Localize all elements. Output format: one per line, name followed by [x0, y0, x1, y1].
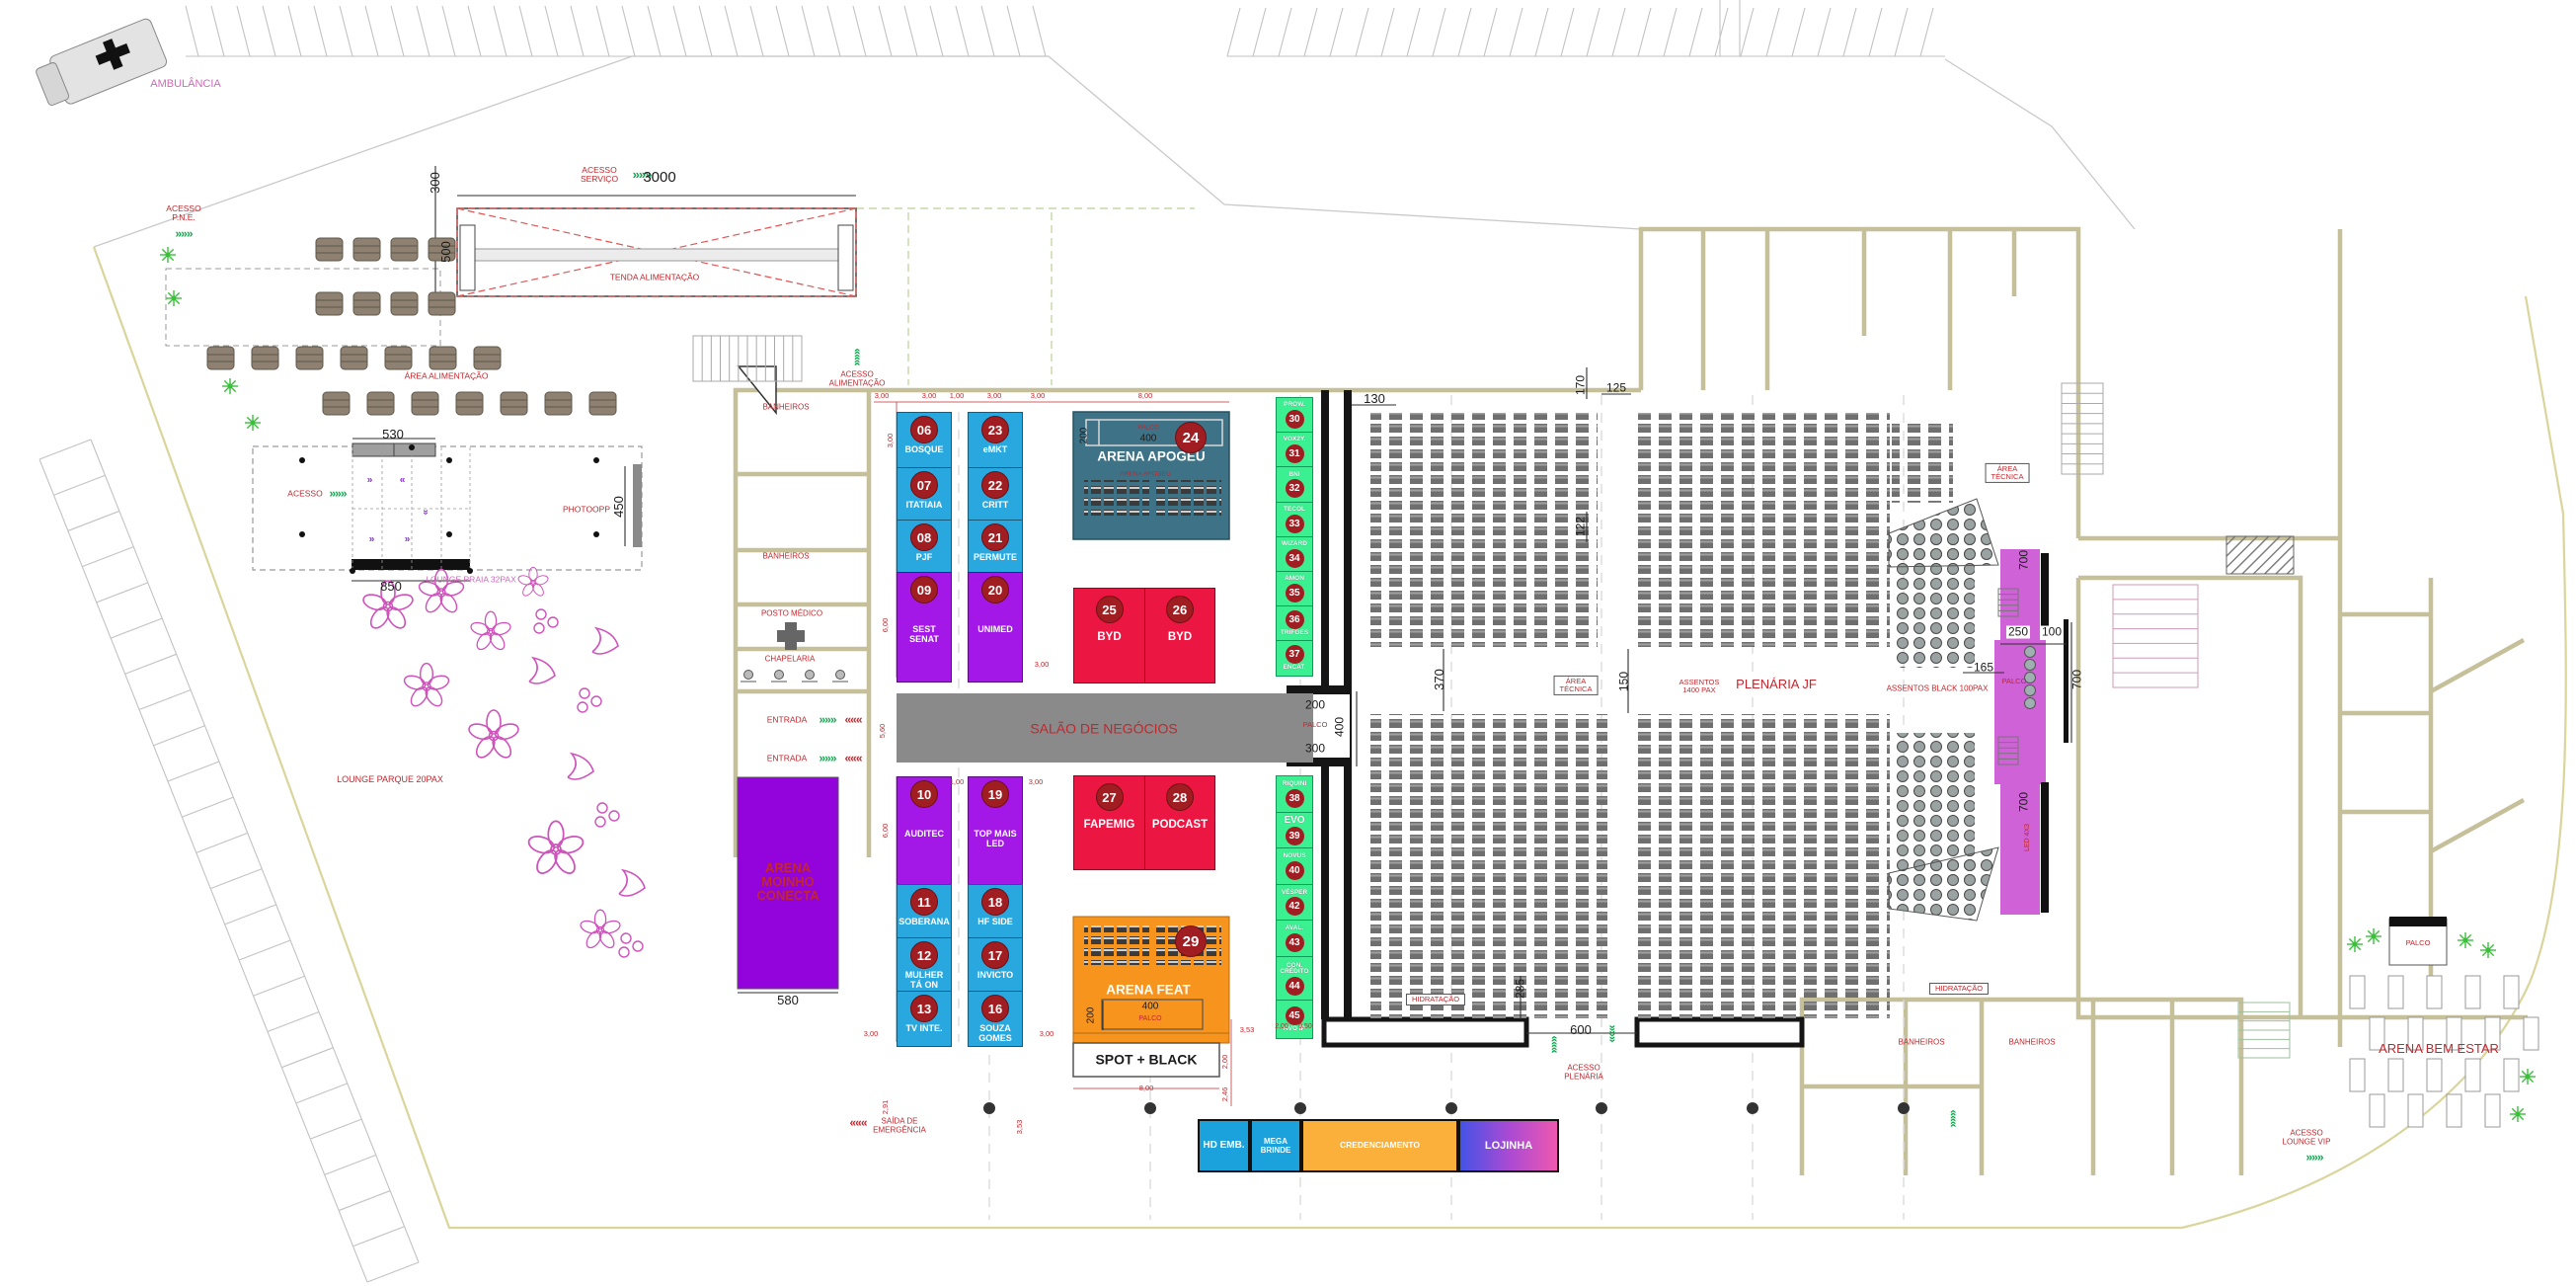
- booth-number-badge: 12: [910, 941, 938, 969]
- kiosk-hd-emb: HD EMB.: [1198, 1119, 1250, 1172]
- booth-name: BYD: [1168, 631, 1192, 644]
- stand-45-nvo-ip: 45NVO IP: [1276, 1000, 1313, 1039]
- booth-number-badge: 25: [1096, 596, 1124, 623]
- booth-number-badge: 13: [910, 995, 938, 1022]
- main-stage: [1994, 536, 2294, 915]
- stand-39-evo: EVO39: [1276, 812, 1313, 849]
- stand-number-badge: 43: [1286, 933, 1304, 952]
- booth-25-byd: 25BYD: [1073, 588, 1145, 683]
- stand-name: VOX2Y.: [1284, 437, 1306, 443]
- stand-name: AVAL.: [1286, 925, 1304, 932]
- stand-name: RIQUINI: [1283, 781, 1307, 788]
- stand-number-badge: 35: [1286, 584, 1304, 603]
- booth-name: BYD: [1097, 631, 1121, 644]
- booth-name: TOP MAIS LED: [974, 830, 1016, 849]
- stand-number-badge: 31: [1286, 444, 1304, 463]
- booth-name: HF SIDE: [977, 918, 1013, 927]
- booth-19-top-mais-led: 19TOP MAIS LED: [968, 776, 1023, 887]
- stand-number-badge: 32: [1286, 479, 1304, 498]
- ambulance-icon: [33, 17, 168, 112]
- booth-number-badge: 26: [1166, 596, 1194, 623]
- booth-16-souza-gomes: 16SOUZA GOMES: [968, 991, 1023, 1047]
- booth-number-badge: 28: [1166, 783, 1194, 811]
- stand-33-tecol: TECOL33: [1276, 502, 1313, 538]
- stand-name: BNI: [1288, 472, 1299, 479]
- food-tent: [457, 208, 856, 296]
- stand-42-v-sper: VÉSPER42: [1276, 884, 1313, 922]
- booth-number-badge: 10: [910, 780, 938, 808]
- stairs-triangle-extras: [739, 366, 805, 650]
- stand-number-badge: 39: [1286, 827, 1304, 845]
- booth-28-podcast: 28PODCAST: [1144, 775, 1215, 870]
- event-floor-plan: AMBULÂNCIAACESSO P.N.E.»»»ACESSO SERVIÇO…: [0, 0, 2576, 1286]
- stand-number-badge: 33: [1286, 515, 1304, 533]
- stand-name: ENCAT.: [1284, 665, 1306, 672]
- booth-number-badge: 07: [910, 471, 938, 499]
- arena-blocks: [738, 412, 1313, 1077]
- booth-name: TV INTE.: [905, 1024, 942, 1034]
- booth-name: SEST SENAT: [909, 625, 939, 645]
- booth-13-tv-inte: 13TV INTE.: [897, 991, 952, 1047]
- stand-44-con-cr-dito: CON. CRÉDITO44: [1276, 956, 1313, 1002]
- stand-43-aval: AVAL.43: [1276, 920, 1313, 958]
- booth-12-mulher-t-on: 12MULHER TÁ ON: [897, 937, 952, 994]
- stand-name: TRIFGES: [1281, 630, 1308, 637]
- booth-08-pjf: 08PJF: [897, 520, 952, 575]
- kiosk-mega-brinde: MEGA BRINDE: [1250, 1119, 1301, 1172]
- stand-36-trifges: 36TRIFGES: [1276, 605, 1313, 642]
- booth-name: INVICTO: [977, 971, 1013, 981]
- booth-name: BOSQUE: [904, 445, 943, 455]
- booth-name: CRITT: [982, 501, 1009, 511]
- stand-38-riquini: RIQUINI38: [1276, 775, 1313, 814]
- kiosk-lojinha: LOJINHA: [1458, 1119, 1559, 1172]
- stand-name: NOVUS: [1283, 853, 1305, 860]
- stand-name: AMON: [1285, 576, 1304, 583]
- stand-number-badge: 40: [1286, 861, 1304, 880]
- kiosk-credenciamento: CREDENCIAMENTO: [1301, 1119, 1458, 1172]
- stand-number-badge: 45: [1286, 1006, 1304, 1025]
- booth-number-badge: 08: [910, 523, 938, 551]
- booth-23-emkt: 23eMKT: [968, 412, 1023, 470]
- stand-number-badge: 44: [1286, 977, 1304, 996]
- stand-number-badge: 36: [1286, 610, 1304, 629]
- booth-number-badge: 16: [981, 995, 1009, 1022]
- booth-26-byd: 26BYD: [1144, 588, 1215, 683]
- booth-name: PODCAST: [1152, 819, 1208, 832]
- booth-name: FAPEMIG: [1084, 819, 1135, 832]
- booth-number-badge: 06: [910, 416, 938, 443]
- stand-number-badge: 30: [1286, 410, 1304, 429]
- stand-number-badge: 42: [1286, 897, 1304, 916]
- wellness-stage: [2389, 917, 2447, 965]
- booth-18-hf-side: 18HF SIDE: [968, 884, 1023, 940]
- stand-34-wizard: WIZARD34: [1276, 536, 1313, 573]
- booth-number-badge: 23: [981, 416, 1009, 443]
- stand-name: VÉSPER: [1282, 890, 1307, 897]
- booth-name: ITATIAIA: [906, 501, 943, 511]
- booth-number-badge: 22: [981, 471, 1009, 499]
- stand-name: EVO: [1284, 816, 1304, 826]
- booth-07-itatiaia: 07ITATIAIA: [897, 467, 952, 522]
- booth-20-unimed: 20UNIMED: [968, 572, 1023, 683]
- site-outline-gray: [94, 56, 2135, 247]
- stand-name: WIZARD: [1282, 541, 1307, 548]
- booth-name: SOBERANA: [898, 918, 950, 927]
- stand-30-prow: PROW.30: [1276, 397, 1313, 434]
- stand-31-vox2y: VOX2Y.31: [1276, 432, 1313, 468]
- booth-10-auditec: 10AUDITEC: [897, 776, 952, 887]
- booth-number-badge: 09: [910, 576, 938, 603]
- booth-name: PJF: [916, 553, 933, 563]
- booth-name: MULHER TÁ ON: [905, 971, 944, 991]
- stand-40-novus: NOVUS40: [1276, 847, 1313, 886]
- stand-name: CON. CRÉDITO: [1280, 963, 1308, 976]
- booth-name: PERMUTE: [974, 553, 1017, 563]
- booth-06-bosque: 06BOSQUE: [897, 412, 952, 470]
- booth-name: SOUZA GOMES: [978, 1024, 1012, 1044]
- badge-24: 24: [1175, 422, 1207, 453]
- booth-11-soberana: 11SOBERANA: [897, 884, 952, 940]
- front-kiosks-bar: HD EMB.MEGA BRINDECREDENCIAMENTOLOJINHA: [1198, 1119, 1559, 1172]
- booth-number-badge: 20: [981, 576, 1009, 603]
- booth-09-sest-senat: 09SEST SENAT: [897, 572, 952, 683]
- booth-number-badge: 19: [981, 780, 1009, 808]
- stand-32-bni: BNI32: [1276, 466, 1313, 504]
- booth-number-badge: 21: [981, 523, 1009, 551]
- booth-name: UNIMED: [977, 625, 1013, 635]
- stand-name: TECOL: [1284, 507, 1305, 514]
- stand-number-badge: 38: [1286, 789, 1304, 808]
- booth-name: AUDITEC: [904, 830, 944, 840]
- stand-37-encat: 37ENCAT.: [1276, 640, 1313, 677]
- booth-number-badge: 11: [910, 888, 938, 916]
- booth-27-fapemig: 27FAPEMIG: [1073, 775, 1145, 870]
- stand-name: PROW.: [1284, 402, 1305, 409]
- badge-29: 29: [1175, 925, 1207, 957]
- booth-21-permute: 21PERMUTE: [968, 520, 1023, 575]
- booth-number-badge: 27: [1096, 783, 1124, 811]
- booth-name: eMKT: [983, 445, 1008, 455]
- booth-number-badge: 17: [981, 941, 1009, 969]
- booth-22-critt: 22CRITT: [968, 467, 1023, 522]
- booth-17-invicto: 17INVICTO: [968, 937, 1023, 994]
- stand-name: NVO IP: [1284, 1026, 1305, 1033]
- booth-number-badge: 18: [981, 888, 1009, 916]
- stand-number-badge: 37: [1286, 645, 1304, 664]
- stand-35-amon: AMON35: [1276, 571, 1313, 607]
- stand-number-badge: 34: [1286, 549, 1304, 568]
